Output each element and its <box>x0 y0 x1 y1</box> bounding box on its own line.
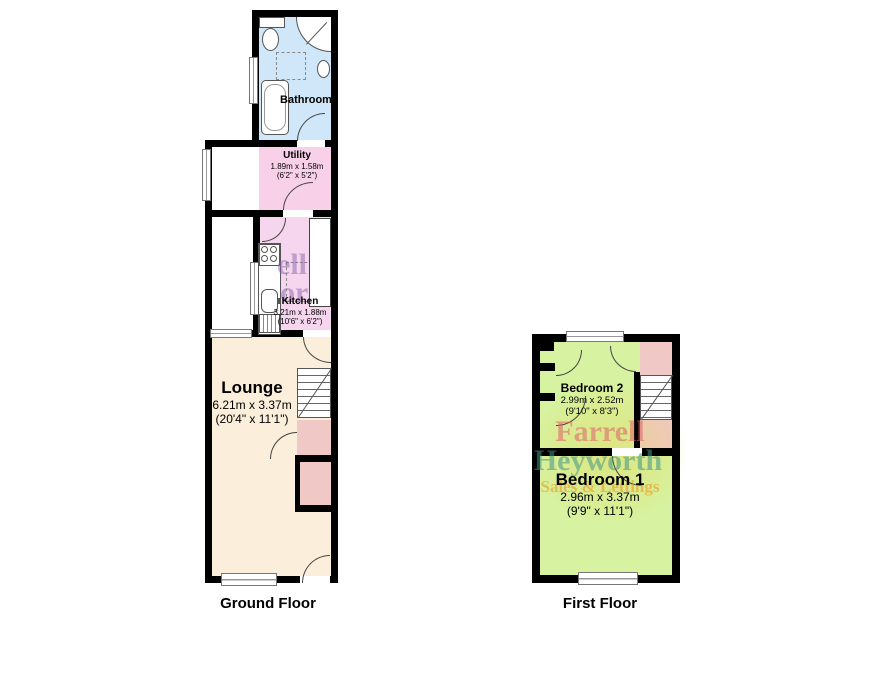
bathroom-window <box>249 57 258 104</box>
door-opening <box>283 210 313 217</box>
kitchen-label: Kitchen 3.21m x 1.88m (10'6" x 6'2") <box>274 296 327 327</box>
lounge-name: Lounge <box>212 378 291 398</box>
kitchen-dims-metric: 3.21m x 1.88m <box>274 308 327 317</box>
cistern-icon <box>259 17 285 28</box>
bedroom1-dims-metric: 2.96m x 3.37m <box>556 490 645 504</box>
bedroom1-name: Bedroom 1 <box>556 470 645 490</box>
lounge-label: Lounge 6.21m x 3.37m (20'4" x 11'1") <box>212 378 291 426</box>
wall <box>295 455 338 462</box>
basin-icon <box>317 60 330 78</box>
kitchen-dims-imperial: (10'6" x 6'2") <box>274 317 327 326</box>
utility-dims-imperial: (6'2" x 5'2") <box>271 171 324 180</box>
kitchen-name: Kitchen <box>274 296 327 308</box>
wall <box>540 342 554 351</box>
bedroom1-dims-imperial: (9'9" x 11'1") <box>556 504 645 518</box>
wall <box>331 10 338 583</box>
hallway-area <box>300 462 331 505</box>
wall <box>252 10 338 17</box>
hob-burner <box>261 255 268 262</box>
wall <box>295 505 338 512</box>
ground-floor-plan: ell or Bathroom Utility 1.89m x 1.58m (6… <box>0 0 440 691</box>
wall <box>205 140 212 583</box>
ground-floor-title: Ground Floor <box>220 595 316 613</box>
bedroom2-label: Bedroom 2 2.99m x 2.52m (9'10" x 8'3") <box>561 381 624 418</box>
toilet-icon <box>262 28 279 51</box>
bath-inner-line <box>264 84 286 131</box>
wall <box>672 334 680 583</box>
head-height-outline <box>276 52 306 80</box>
utility-name: Utility <box>271 150 324 162</box>
bathroom-name: Bathroom <box>280 94 332 107</box>
bathroom-label: Bathroom <box>280 94 332 107</box>
wall <box>540 363 555 371</box>
bedroom1-label: Bedroom 1 2.96m x 3.37m (9'9" x 11'1") <box>556 470 645 518</box>
lounge-rear-window <box>210 329 252 338</box>
lounge-dims-metric: 6.21m x 3.37m <box>212 398 291 412</box>
bedroom2-window <box>566 331 624 342</box>
wall <box>295 455 300 512</box>
lounge-dims-imperial: (20'4" x 11'1") <box>212 412 291 426</box>
hob-burner <box>261 246 268 253</box>
bedroom2-name: Bedroom 2 <box>561 381 624 395</box>
hob-burner <box>270 246 277 253</box>
bedroom1-window <box>578 572 638 585</box>
bedroom2-dims-metric: 2.99m x 2.52m <box>561 395 624 406</box>
utility-dims-metric: 1.89m x 1.58m <box>271 162 324 171</box>
bedroom2-dims-imperial: (9'10" x 8'3") <box>561 406 624 417</box>
door-opening <box>303 330 331 337</box>
wall <box>540 393 555 401</box>
door-opening <box>297 140 325 147</box>
pantry-area <box>309 218 331 307</box>
first-floor-plan: Farrell Heyworth Sales & Lettings Bedroo… <box>440 0 886 691</box>
hob-burner <box>270 255 277 262</box>
utility-label: Utility 1.89m x 1.58m (6'2" x 5'2") <box>271 150 324 181</box>
utility-window <box>202 149 211 201</box>
first-floor-title: First Floor <box>563 595 637 613</box>
understairs-area <box>297 420 331 455</box>
lounge-front-window <box>221 573 277 586</box>
